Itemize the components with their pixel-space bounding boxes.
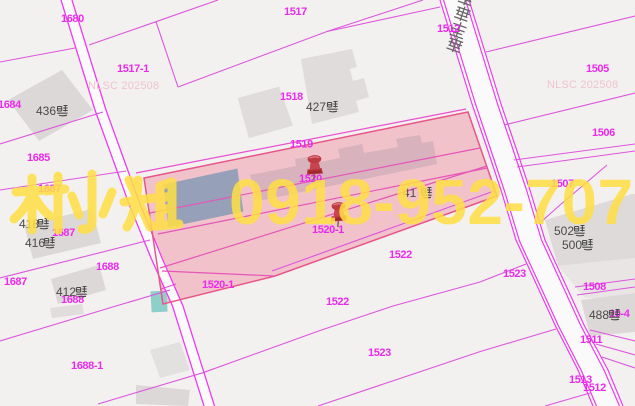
svg-text:0918-952-707: 0918-952-707 xyxy=(229,166,634,238)
svg-text:1511: 1511 xyxy=(580,334,603,346)
svg-text:NLSC 202508: NLSC 202508 xyxy=(88,80,159,92)
svg-text:1687: 1687 xyxy=(4,276,27,288)
svg-text:1684: 1684 xyxy=(0,99,22,111)
svg-text:1520-1: 1520-1 xyxy=(202,279,234,291)
svg-text:1519: 1519 xyxy=(290,139,313,151)
svg-text:436: 436 xyxy=(36,104,56,118)
svg-text:1517-1: 1517-1 xyxy=(117,63,149,75)
svg-text:1518: 1518 xyxy=(280,91,303,103)
svg-text:1523: 1523 xyxy=(503,268,526,280)
svg-text:1688-1: 1688-1 xyxy=(71,360,103,372)
svg-text:427: 427 xyxy=(306,100,326,114)
svg-text:1522: 1522 xyxy=(326,296,349,308)
svg-text:1512: 1512 xyxy=(583,382,606,394)
svg-text:10-4: 10-4 xyxy=(609,308,631,320)
svg-text:1680: 1680 xyxy=(61,13,84,25)
svg-text:1523: 1523 xyxy=(368,347,391,359)
svg-text:500: 500 xyxy=(562,238,582,252)
svg-text:1685: 1685 xyxy=(27,152,50,164)
svg-text:488: 488 xyxy=(589,308,609,322)
svg-text:1506: 1506 xyxy=(592,127,615,139)
svg-text:416: 416 xyxy=(25,236,45,250)
svg-text:1517: 1517 xyxy=(284,6,307,18)
svg-text:412: 412 xyxy=(56,285,76,299)
svg-text:NLSC 202508: NLSC 202508 xyxy=(547,79,618,91)
svg-text:1512: 1512 xyxy=(437,23,460,35)
svg-text:1505: 1505 xyxy=(586,63,609,75)
svg-text:1522: 1522 xyxy=(389,249,412,261)
svg-text:1688: 1688 xyxy=(96,261,119,273)
svg-text:1508: 1508 xyxy=(583,281,606,293)
